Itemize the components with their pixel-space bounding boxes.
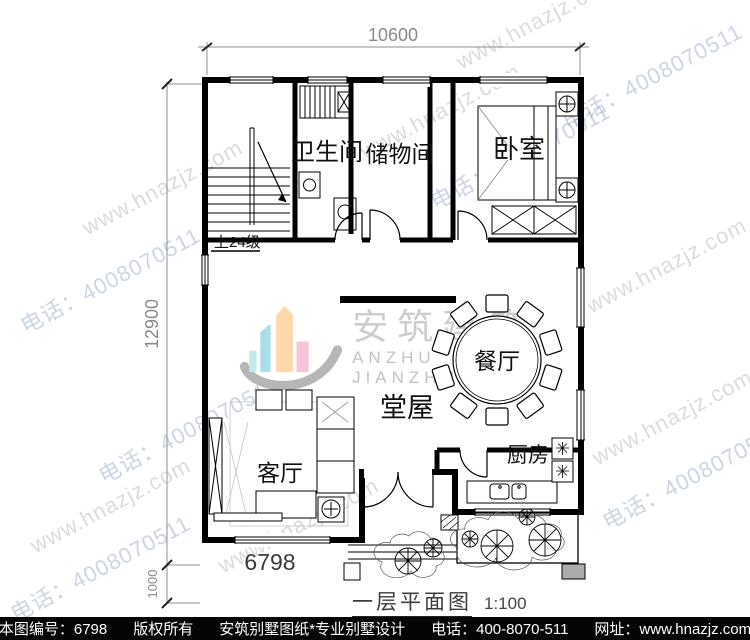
room-label-storage: 储物间 xyxy=(366,141,435,167)
shrub-outline xyxy=(450,512,564,570)
room-label-bathroom: 卫生间 xyxy=(291,139,363,166)
footer-bar: 本图编号：6798 版权所有 安筑别墅图纸*专业别墅设计 电话：400-8070… xyxy=(0,617,750,640)
wardrobe xyxy=(492,206,576,234)
nightstands xyxy=(556,92,578,202)
stairs-note: 上24级 xyxy=(214,234,261,251)
dim-top: 10600 xyxy=(368,25,418,45)
footer-brand: 安筑别墅图纸*专业别墅设计 xyxy=(219,618,405,639)
room-label-dining: 餐厅 xyxy=(474,348,520,374)
hall-screen xyxy=(340,296,456,303)
plan-title: 一层平面图 xyxy=(352,591,472,618)
footer-phone: 电话：400-8070-511 xyxy=(431,618,568,639)
living-furniture xyxy=(209,390,354,526)
floorplan-drawing: 10600 12900 1000 6798 xyxy=(0,0,750,640)
dim-bottom: 6798 xyxy=(244,549,295,575)
column xyxy=(562,564,585,579)
room-label-living: 客厅 xyxy=(257,460,303,486)
dim-left-small: 1000 xyxy=(145,570,160,599)
room-label-kitchen: 厨房 xyxy=(507,444,549,467)
floorplan-sheet: 电话：4008070511 www.hnazjz.com 电话：40080705… xyxy=(0,0,750,640)
footer-sheet-no: 本图编号：6798 xyxy=(0,618,107,639)
title-block: 一层平面图1:100 xyxy=(352,586,527,616)
terrace-garden xyxy=(344,512,585,580)
footer-site: 网址：www.hnazjz.com xyxy=(594,618,750,639)
footer-copyright: 版权所有 xyxy=(133,618,193,639)
room-label-bedroom: 卧室 xyxy=(493,134,545,164)
plan-scale: 1:100 xyxy=(484,594,527,613)
stairs xyxy=(208,128,290,251)
dim-left: 12900 xyxy=(142,299,162,349)
room-label-hall: 堂屋 xyxy=(380,393,434,423)
